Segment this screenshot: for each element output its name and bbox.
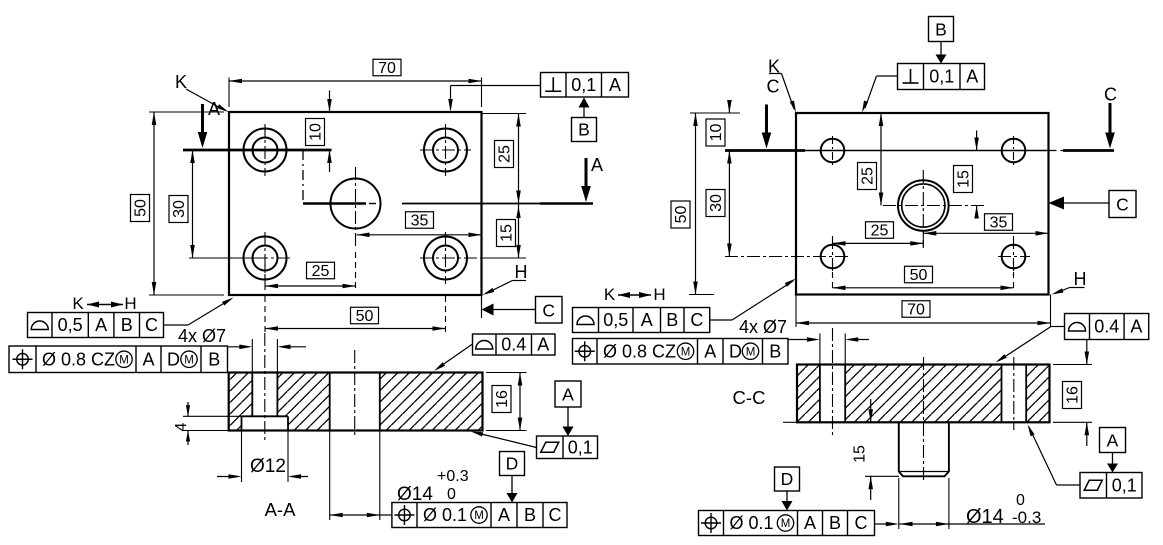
svg-text:A: A xyxy=(562,385,574,405)
svg-text:0,1: 0,1 xyxy=(929,67,954,87)
svg-text:B: B xyxy=(121,315,133,335)
svg-text:C: C xyxy=(1104,85,1117,105)
svg-text:Ø12: Ø12 xyxy=(250,456,286,477)
svg-text:D: D xyxy=(729,341,742,361)
svg-text:70: 70 xyxy=(378,60,396,77)
svg-text:H: H xyxy=(515,262,528,282)
svg-text:C: C xyxy=(542,301,555,321)
svg-text:A: A xyxy=(609,75,621,95)
svg-text:M: M xyxy=(746,346,756,358)
svg-text:50: 50 xyxy=(133,199,150,217)
svg-text:A: A xyxy=(95,315,107,335)
svg-text:C-C: C-C xyxy=(733,387,766,408)
svg-text:35: 35 xyxy=(411,213,429,230)
svg-text:Ø 0.8 CZ: Ø 0.8 CZ xyxy=(603,341,676,361)
svg-text:0: 0 xyxy=(1016,492,1025,509)
svg-text:C: C xyxy=(767,77,780,97)
svg-text:A: A xyxy=(1130,317,1142,337)
svg-text:B: B xyxy=(524,505,536,525)
svg-text:C: C xyxy=(690,310,703,330)
svg-text:B: B xyxy=(578,120,590,140)
svg-text:25: 25 xyxy=(312,263,330,280)
svg-text:15: 15 xyxy=(956,170,973,188)
svg-text:M: M xyxy=(119,354,129,366)
svg-text:15: 15 xyxy=(499,224,516,242)
svg-text:50: 50 xyxy=(910,267,928,284)
svg-text:C: C xyxy=(855,513,868,533)
svg-text:10: 10 xyxy=(308,123,325,141)
svg-text:B: B xyxy=(935,20,947,40)
svg-text:50: 50 xyxy=(673,206,690,224)
svg-text:25: 25 xyxy=(871,223,889,240)
svg-text:35: 35 xyxy=(990,215,1008,232)
svg-text:Ø14: Ø14 xyxy=(966,506,1004,528)
svg-text:B: B xyxy=(666,310,678,330)
svg-text:30: 30 xyxy=(708,194,725,212)
svg-text:0,5: 0,5 xyxy=(603,310,628,330)
svg-text:0,1: 0,1 xyxy=(568,437,593,457)
svg-text:M: M xyxy=(474,510,484,522)
svg-text:D: D xyxy=(506,454,519,474)
svg-text:D: D xyxy=(781,469,794,489)
svg-text:10: 10 xyxy=(708,124,725,142)
svg-text:A-A: A-A xyxy=(265,499,297,520)
svg-text:C: C xyxy=(1116,195,1129,215)
svg-text:25: 25 xyxy=(497,145,514,163)
svg-text:Ø 0.8 CZ: Ø 0.8 CZ xyxy=(42,349,115,369)
svg-text:A: A xyxy=(537,335,549,355)
svg-text:Ø7: Ø7 xyxy=(763,317,787,337)
svg-text:4: 4 xyxy=(173,422,190,431)
svg-text:C: C xyxy=(145,315,158,335)
svg-text:H: H xyxy=(1074,269,1087,289)
svg-text:0.4: 0.4 xyxy=(501,335,526,355)
svg-text:0.4: 0.4 xyxy=(1094,317,1119,337)
svg-text:16: 16 xyxy=(1065,386,1082,404)
svg-text:Ø 0.1: Ø 0.1 xyxy=(423,505,467,525)
svg-text:25: 25 xyxy=(860,167,877,185)
svg-text:B: B xyxy=(769,341,781,361)
svg-text:A: A xyxy=(498,505,510,525)
svg-text:K: K xyxy=(175,72,187,92)
svg-text:16: 16 xyxy=(494,390,511,408)
svg-text:30: 30 xyxy=(171,200,188,218)
svg-text:A: A xyxy=(704,341,716,361)
svg-text:M: M xyxy=(781,518,791,530)
svg-text:15: 15 xyxy=(852,445,869,463)
svg-text:K: K xyxy=(72,294,84,313)
svg-text:70: 70 xyxy=(907,302,925,319)
svg-text:4x: 4x xyxy=(178,326,197,346)
svg-text:Ø 0.1: Ø 0.1 xyxy=(730,513,774,533)
svg-text:M: M xyxy=(184,354,194,366)
svg-text:50: 50 xyxy=(356,308,374,325)
svg-text:4x: 4x xyxy=(739,317,758,337)
svg-text:A: A xyxy=(641,310,653,330)
svg-text:B: B xyxy=(208,349,220,369)
svg-text:H: H xyxy=(124,294,136,313)
svg-text:A: A xyxy=(591,155,603,175)
svg-text:Ø7: Ø7 xyxy=(202,326,226,346)
svg-text:A: A xyxy=(142,349,154,369)
svg-text:K: K xyxy=(604,285,616,304)
svg-text:M: M xyxy=(681,346,691,358)
svg-text:A: A xyxy=(804,513,816,533)
svg-text:0: 0 xyxy=(447,486,456,503)
svg-text:+0.3: +0.3 xyxy=(437,468,469,485)
svg-text:0,5: 0,5 xyxy=(58,315,83,335)
svg-text:A: A xyxy=(1107,431,1119,451)
svg-text:C: C xyxy=(549,505,562,525)
svg-text:0,1: 0,1 xyxy=(1112,475,1137,495)
svg-text:0,1: 0,1 xyxy=(571,75,596,95)
svg-text:A: A xyxy=(966,67,978,87)
svg-text:H: H xyxy=(653,285,665,304)
svg-text:D: D xyxy=(167,349,180,369)
svg-text:B: B xyxy=(829,513,841,533)
svg-text:-0.3: -0.3 xyxy=(1012,508,1041,527)
